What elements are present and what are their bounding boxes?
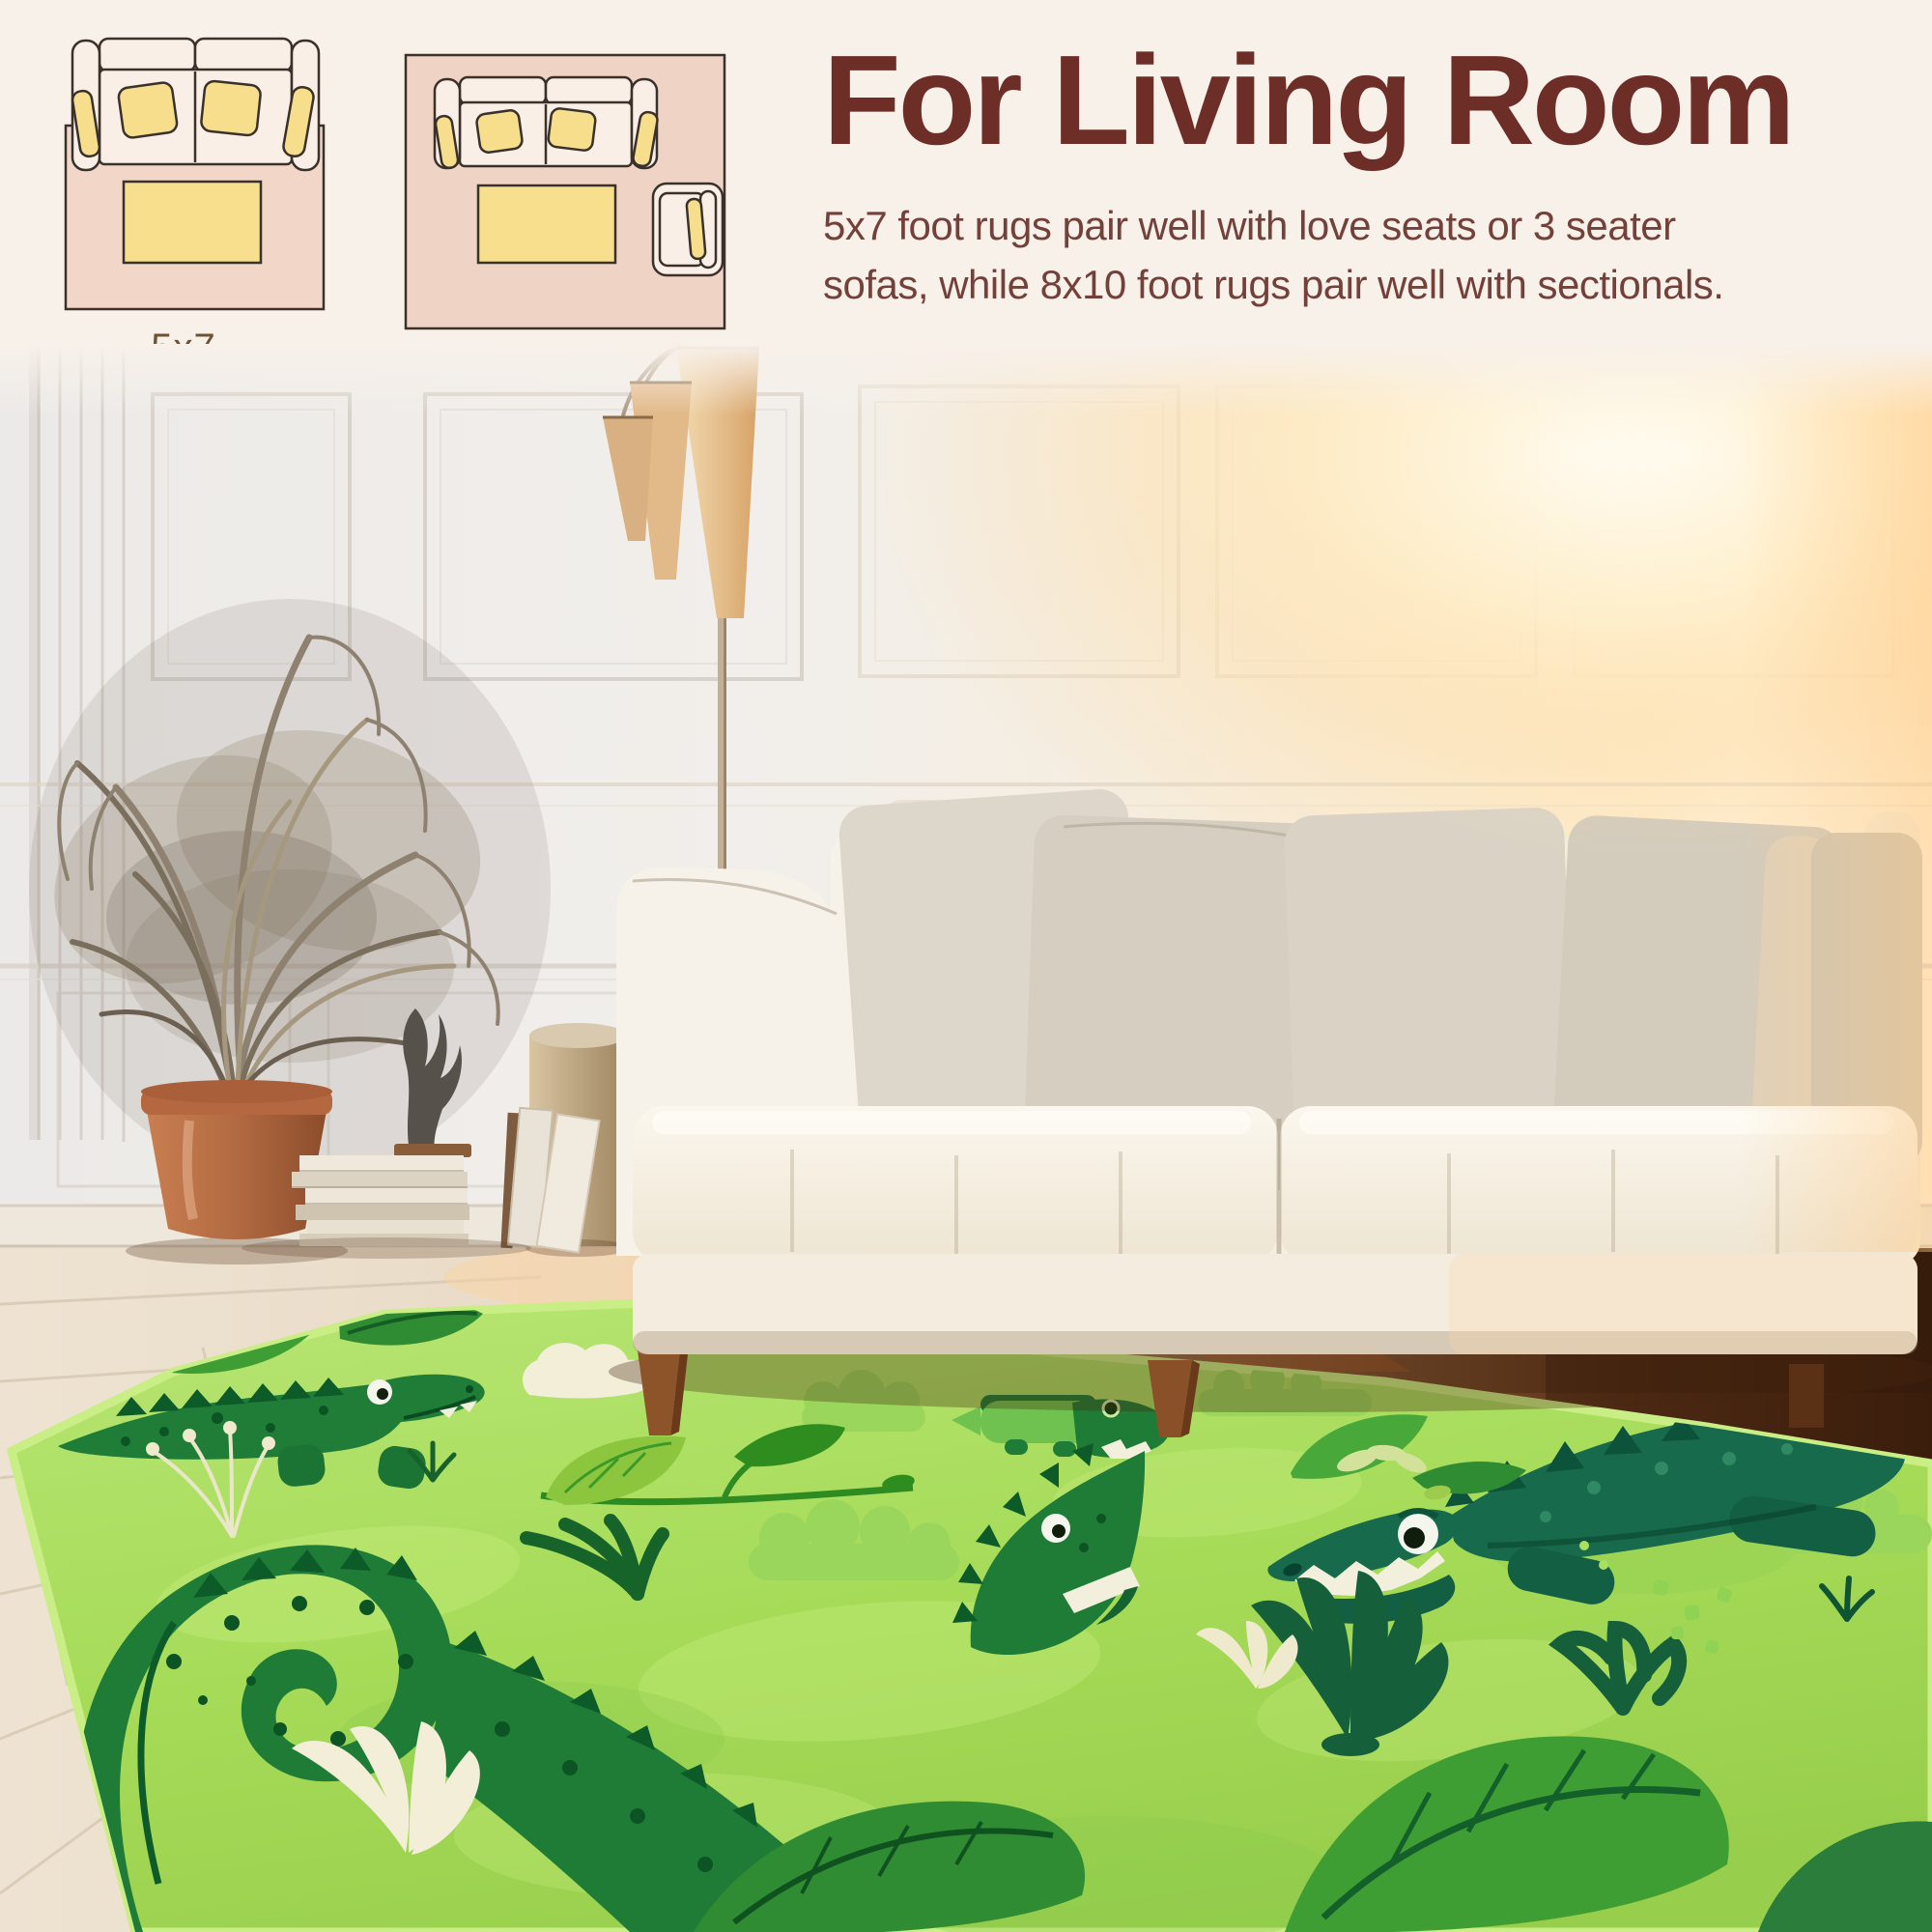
diagram-8x10-illustration <box>399 46 727 332</box>
diagram-coffee-table <box>124 182 261 263</box>
section-heading: For Living Room <box>823 33 1932 168</box>
diagram-sofa <box>435 77 659 169</box>
description-line-1: 5x7 foot rugs pair well with love seats … <box>823 197 1932 256</box>
size-guide-copy: For Living Room 5x7 foot rugs pair well … <box>823 33 1932 315</box>
product-infographic: 5x7 <box>0 0 1932 1932</box>
living-room-scene <box>0 344 1932 1932</box>
diagram-coffee-table <box>478 185 615 263</box>
sofa-seat-cushions <box>633 1106 1918 1263</box>
diagram-sofa <box>71 39 319 170</box>
diagram-armchair <box>653 184 723 275</box>
rug-size-diagram-5x7 <box>29 27 338 327</box>
description-line-2: sofas, while 8x10 foot rugs pair well wi… <box>823 256 1932 315</box>
section-description: 5x7 foot rugs pair well with love seats … <box>823 197 1932 315</box>
rug-size-diagram-8x10 <box>399 46 727 332</box>
living-room-photo <box>0 344 1932 1932</box>
right-warm-glow <box>1739 344 1932 1252</box>
diagram-5x7-illustration <box>29 27 338 327</box>
